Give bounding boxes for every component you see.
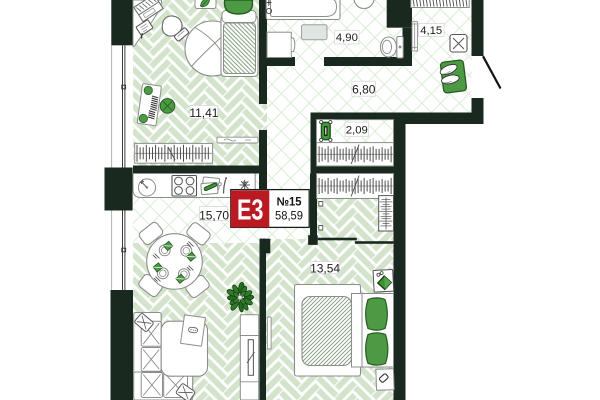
svg-text:6,80: 6,80 bbox=[352, 83, 376, 97]
svg-text:4,15: 4,15 bbox=[420, 25, 442, 37]
svg-text:58,59: 58,59 bbox=[275, 208, 303, 222]
svg-text:13,54: 13,54 bbox=[310, 262, 340, 276]
svg-text:№15: №15 bbox=[277, 195, 302, 209]
svg-text:15,70: 15,70 bbox=[199, 208, 229, 222]
svg-text:11,41: 11,41 bbox=[189, 106, 218, 120]
svg-text:4,90: 4,90 bbox=[336, 32, 358, 44]
svg-text:E3: E3 bbox=[237, 194, 264, 226]
svg-text:2,09: 2,09 bbox=[346, 124, 368, 136]
